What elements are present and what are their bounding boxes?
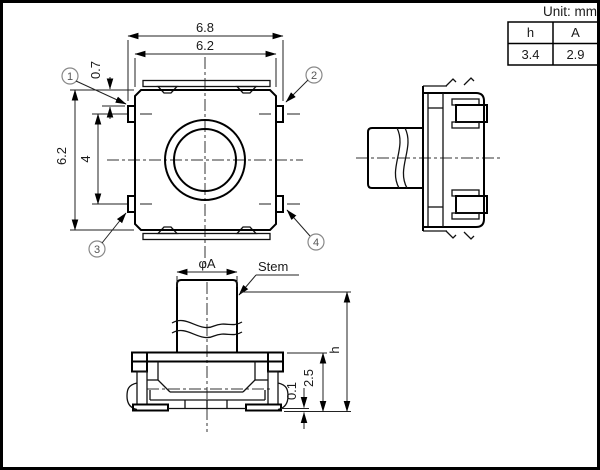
table-header-a: A [571,25,580,40]
terminal-3-label: 3 [94,244,100,256]
dim-outer-width-label: 6.8 [196,20,214,35]
table-header-h: h [527,25,534,40]
dim-offset-label: 0.7 [88,61,103,79]
table-value-h: 3.4 [521,47,539,62]
dim-body-height-label: 6.2 [54,147,69,165]
dim-2-5-label: 2.5 [301,369,316,387]
stem-dia-label: φA [198,256,215,271]
unit-label: Unit: mm [543,4,597,19]
stem-label: Stem [258,259,288,274]
table-value-a: 2.9 [566,47,584,62]
dim-pitch-label: 4 [78,155,93,162]
dim-h-label: h [327,346,342,353]
technical-drawing-page: Unit: mm h A 3.4 2.9 [0,0,600,470]
terminal-1-label: 1 [67,71,73,83]
switch-drawing: Unit: mm h A 3.4 2.9 [0,0,600,470]
terminal-2-label: 2 [311,70,317,82]
terminal-4-label: 4 [313,237,319,249]
dim-0-1-label: 0.1 [284,382,299,400]
dim-body-width-label: 6.2 [196,38,214,53]
